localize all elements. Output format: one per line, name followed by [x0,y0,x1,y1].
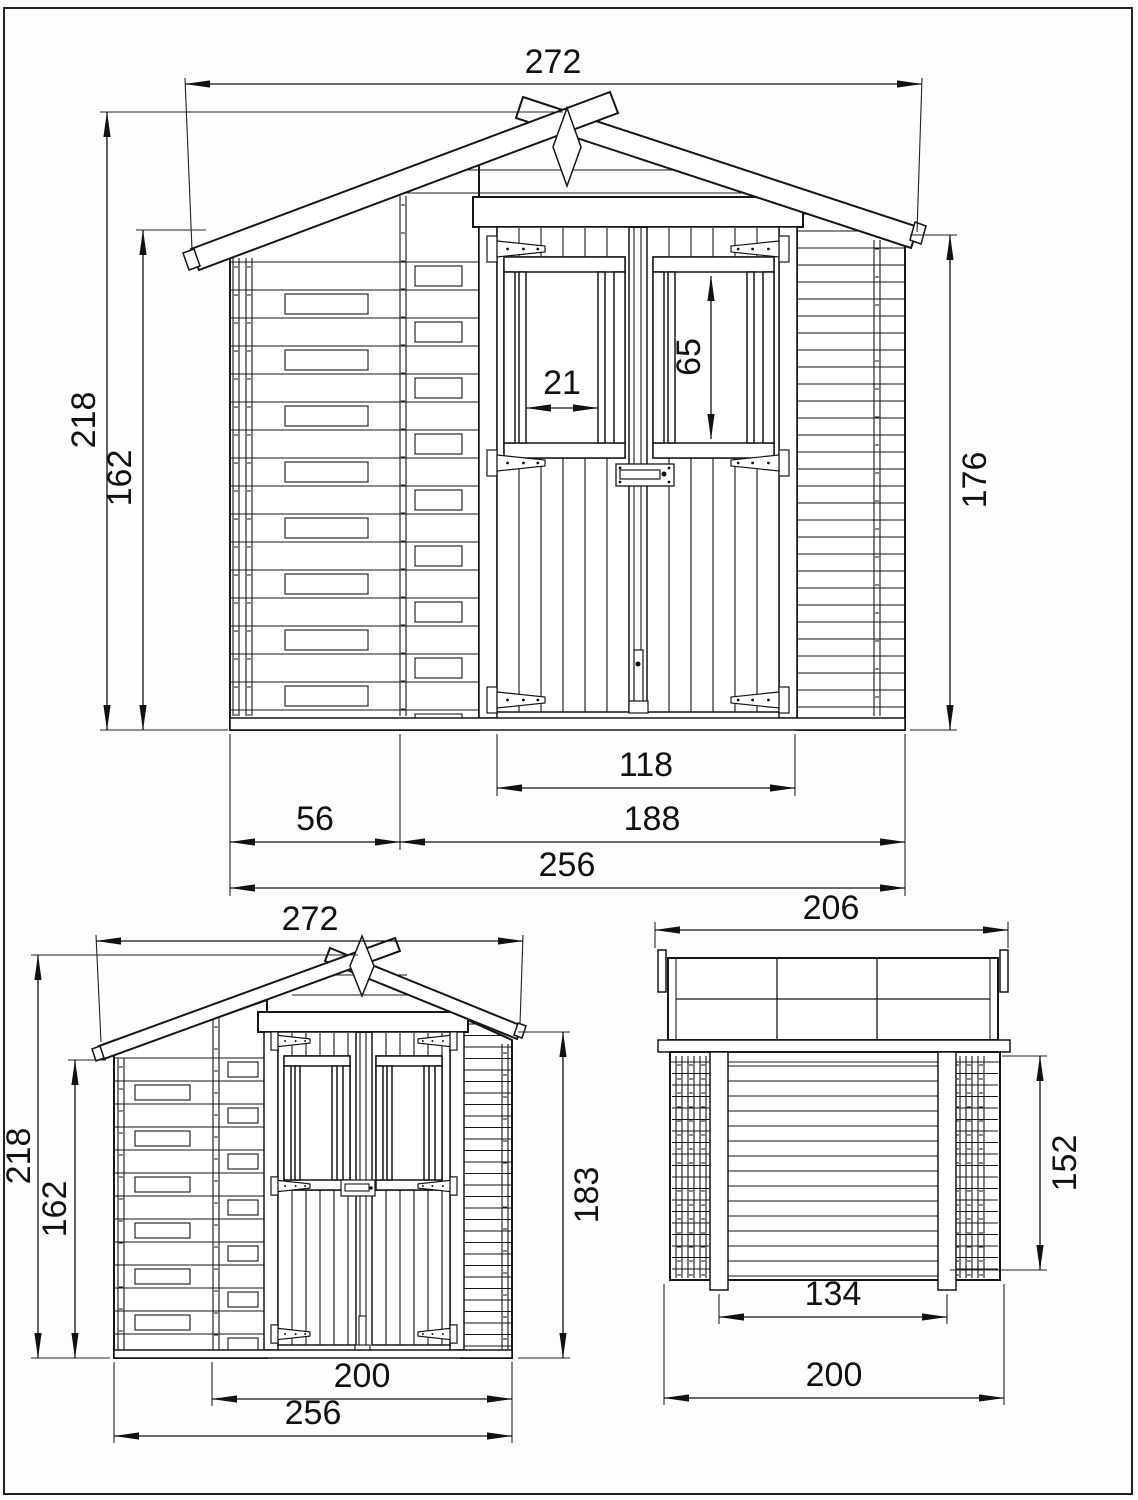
dimension-label: 162 [36,1181,74,1238]
dimension-label: 206 [803,889,860,927]
dimension-front-base-width: 256 [230,846,905,888]
dimension-door-width: 118 [497,734,795,796]
roof-fascia [658,1040,1010,1052]
window-frame [284,1056,350,1190]
dimension-side-roof-depth: 206 [655,889,1008,948]
dimension-label: 272 [282,900,339,938]
door-window-right [376,1056,442,1190]
rear-base-rail [114,1350,512,1358]
window-bar [519,272,526,443]
dimension-label: 21 [543,364,581,402]
door-window-left [284,1056,350,1190]
bargeboard-end-left [658,950,666,992]
window-stile [763,272,774,443]
dimension-label: 134 [805,1275,862,1313]
roof-finial-diamond [350,936,374,996]
rear-elevation-view: 272 218 162 183 200 256 [0,900,606,1443]
dimension-label: 56 [296,800,334,838]
side-post-right [938,1052,956,1290]
window-top-rail [504,257,625,272]
dimension-rear-wall-height: 162 [36,1060,106,1358]
window-bar [332,1066,337,1180]
dimension-label: 272 [525,43,582,81]
dimension-rear-door-section: 200 [212,1357,512,1443]
dimension-label: 218 [0,1128,38,1185]
dimension-front-left-section: 56 [230,734,400,896]
window-bar [295,1066,300,1180]
window-bar [387,1066,392,1180]
dimension-side-inner-span: 134 [719,1275,947,1324]
front-elevation-view: 272 218 162 176 21 65 [65,43,994,896]
window-bar [598,272,605,443]
dimension-label: 218 [65,392,103,449]
dimension-label: 188 [624,800,681,838]
front-door-assembly [473,197,803,718]
bargeboard-end-right [1000,950,1008,992]
window-stile [653,272,664,443]
door-header-board [473,197,803,227]
dimension-label: 200 [806,1356,863,1394]
window-stile [614,272,625,443]
window-top-rail [376,1056,442,1066]
window-stile [435,1066,442,1180]
front-base-rail [230,718,905,730]
side-post-left [710,1052,728,1290]
dimension-front-right-height: 176 [910,235,994,730]
front-right-wall-section [797,210,905,730]
dimension-front-wall-height: 162 [101,230,206,730]
window-stile [504,272,515,443]
window-bar [747,272,754,443]
dimension-rear-right-height: 183 [518,1032,606,1358]
dimension-label: 256 [539,846,596,884]
window-stile [343,1066,350,1180]
window-top-rail [653,257,774,272]
dimension-label: 176 [956,452,994,509]
window-bottom-rail [504,443,625,458]
window-bar [424,1066,429,1180]
window-bottom-rail [653,443,774,458]
window-stile [284,1066,291,1180]
window-stile [376,1066,383,1180]
dimension-label: 152 [1046,1135,1084,1192]
dimension-rear-base-width: 256 [114,1362,512,1443]
side-roof-band [658,950,1010,1052]
door-header-board [258,1012,468,1032]
dimension-label: 162 [101,450,139,507]
side-elevation-view: 206 152 134 200 [655,889,1084,1405]
dimension-label: 256 [285,1394,342,1432]
dimension-label: 118 [619,746,673,784]
dimension-label: 65 [670,338,708,376]
rear-right-wall-section [461,1017,512,1358]
rear-door-assembly [258,1012,468,1353]
window-frame [376,1056,442,1190]
door-window-left [504,257,625,458]
shed-technical-drawing: 272 218 162 176 21 65 [0,0,1138,1500]
drawing-canvas: 272 218 162 176 21 65 [0,0,1138,1500]
dimension-label: 200 [334,1357,391,1395]
dimension-label: 183 [568,1167,606,1224]
window-top-rail [284,1056,350,1066]
